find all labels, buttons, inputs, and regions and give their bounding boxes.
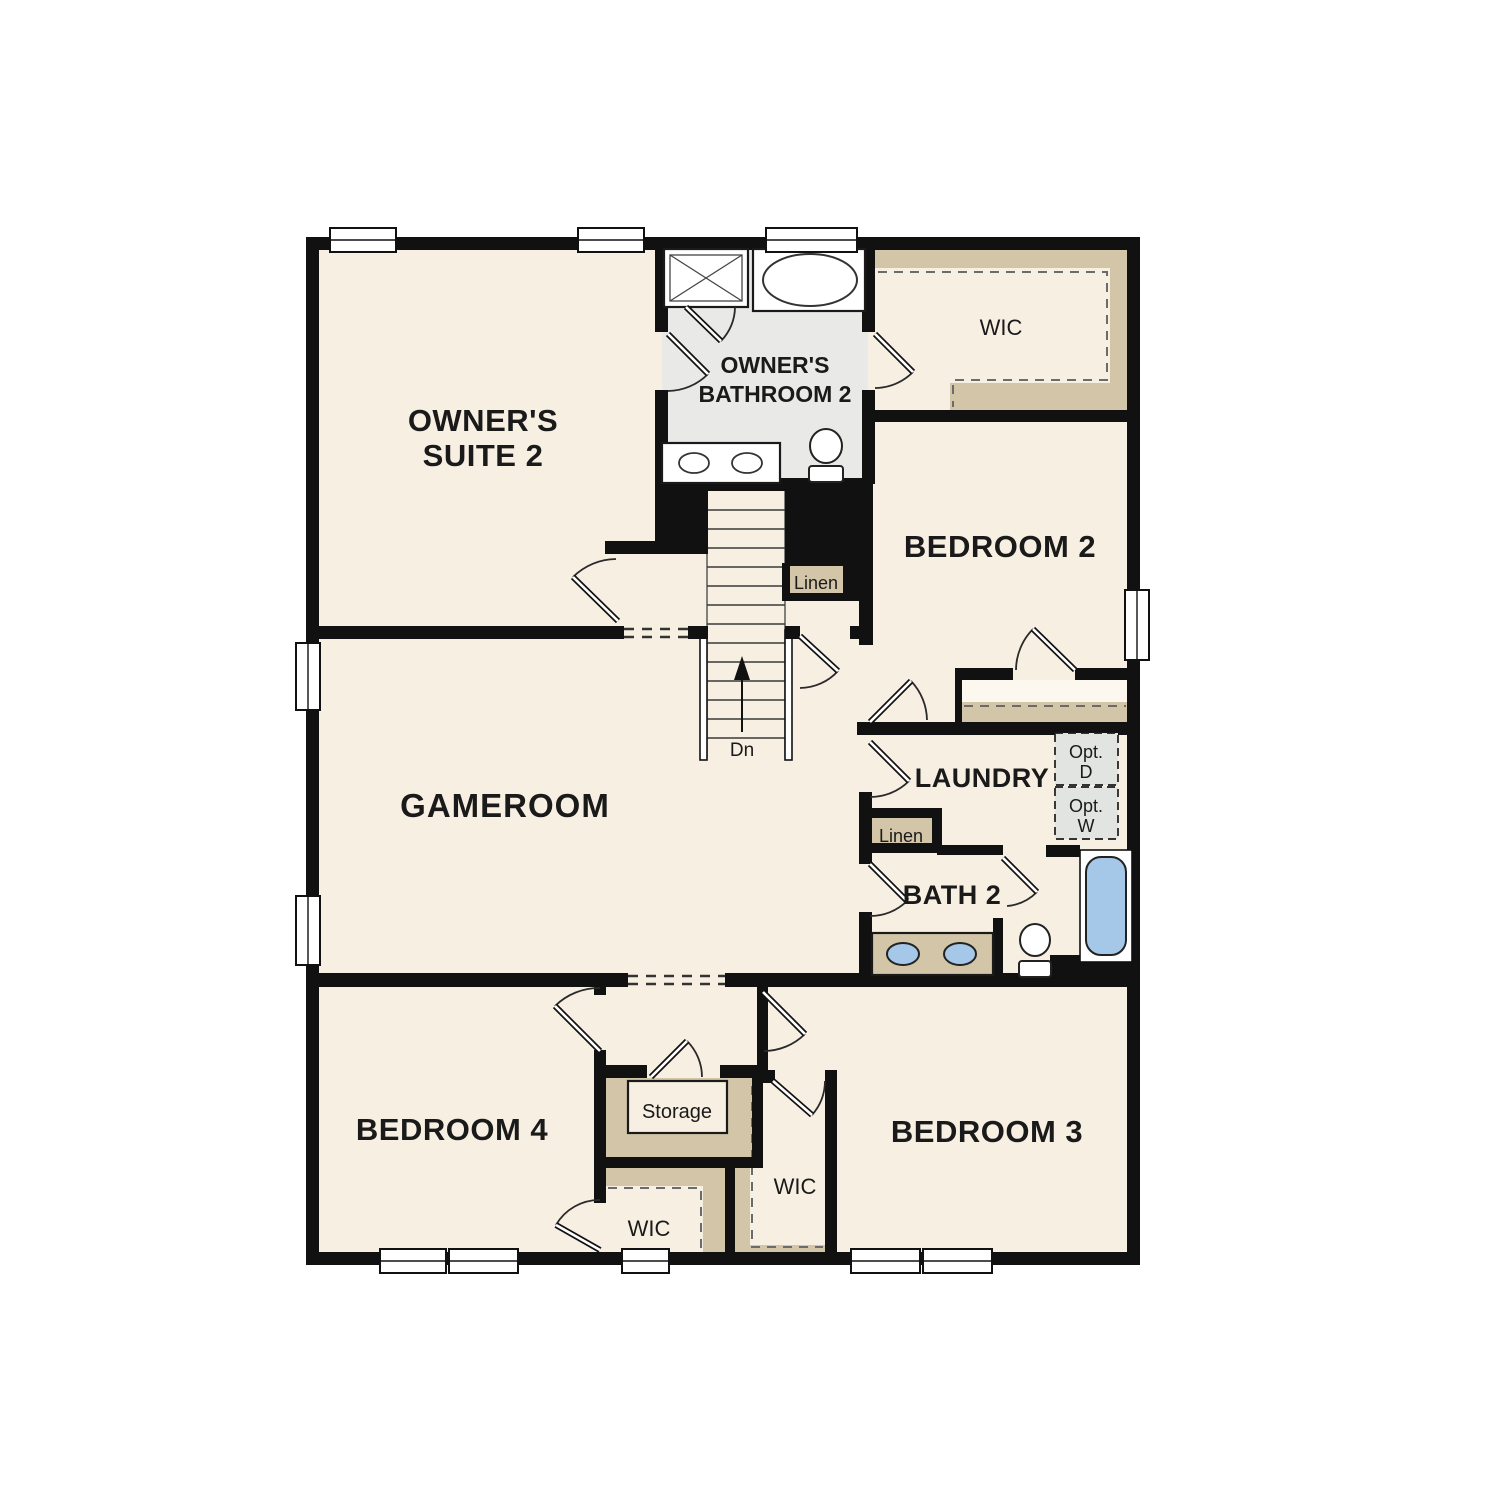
toilet — [809, 429, 843, 482]
label-bedroom3-wic: WIC — [774, 1174, 817, 1199]
label-owners-suite-line1: OWNER'S — [408, 403, 558, 438]
label-bedroom4-wic: WIC — [628, 1216, 671, 1241]
window — [578, 228, 644, 252]
shower — [664, 249, 748, 307]
label-linen-lower: Linen — [879, 826, 923, 846]
label-owners-bathroom-line2: BATHROOM 2 — [699, 381, 852, 407]
sink — [732, 453, 762, 473]
stair-rail-left — [700, 630, 707, 760]
bath2-vanity — [872, 933, 993, 975]
window — [923, 1249, 992, 1273]
garden-tub — [753, 249, 865, 311]
stair-rail-right — [785, 630, 792, 760]
label-bedroom2: BEDROOM 2 — [904, 529, 1096, 564]
label-stairs-down: Dn — [730, 740, 754, 761]
window — [622, 1249, 669, 1273]
label-opt-washer-line2: W — [1078, 816, 1095, 836]
window — [296, 643, 320, 710]
label-opt-dryer-line1: Opt. — [1069, 742, 1103, 762]
bedroom4-wic-shelf-right — [703, 1186, 725, 1256]
label-owners-suite-line2: SUITE 2 — [423, 438, 544, 473]
window — [851, 1249, 920, 1273]
label-linen-upper: Linen — [794, 573, 838, 593]
window — [766, 228, 857, 252]
label-gameroom: GAMEROOM — [400, 787, 610, 824]
double-vanity — [662, 443, 780, 483]
bedroom2-closet-floor — [962, 680, 1128, 702]
label-bedroom4: BEDROOM 4 — [356, 1112, 549, 1147]
bathtub — [1080, 850, 1132, 962]
window — [380, 1249, 446, 1273]
window — [296, 896, 320, 965]
label-bedroom3: BEDROOM 3 — [891, 1114, 1083, 1149]
bedroom4-wic-shelf-top — [606, 1168, 725, 1186]
label-storage: Storage — [642, 1101, 712, 1123]
label-owner-wic: WIC — [980, 315, 1023, 340]
wall-outer-right — [1127, 237, 1140, 1265]
wall-outer-left — [306, 237, 319, 1265]
toilet — [1019, 924, 1051, 977]
owner-wic-shelf-bottom — [950, 383, 1127, 410]
floor-plan-page: OWNER'S SUITE 2 OWNER'S BATHROOM 2 WIC B… — [0, 0, 1500, 1500]
window — [449, 1249, 518, 1273]
label-laundry: LAUNDRY — [915, 763, 1050, 793]
label-owners-bathroom-line1: OWNER'S — [721, 352, 830, 378]
label-bath2: BATH 2 — [903, 880, 1002, 910]
sink — [679, 453, 709, 473]
floor-plan: OWNER'S SUITE 2 OWNER'S BATHROOM 2 WIC B… — [0, 0, 1500, 1500]
staircase — [700, 491, 792, 760]
label-opt-washer-line1: Opt. — [1069, 796, 1103, 816]
bedroom3-wic-shelf-left — [735, 1083, 750, 1256]
sink — [887, 943, 919, 965]
window — [1125, 590, 1149, 660]
label-opt-dryer-line2: D — [1080, 762, 1093, 782]
window — [330, 228, 396, 252]
sink — [944, 943, 976, 965]
owner-wic-shelf-top — [875, 250, 1127, 268]
